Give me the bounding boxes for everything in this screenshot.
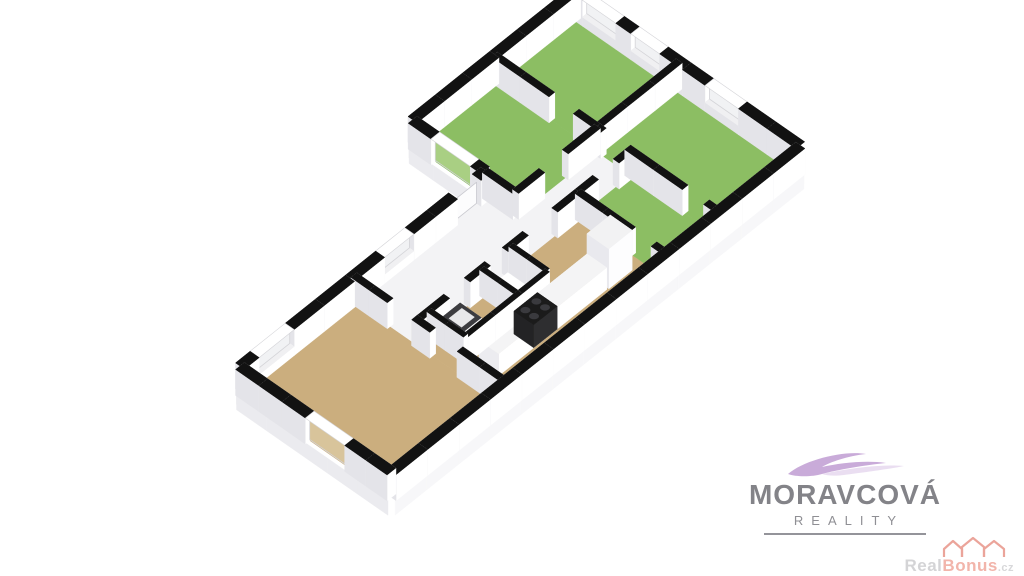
houses-icon (942, 536, 1008, 558)
agency-name: MORAVCOVÁ (745, 480, 945, 509)
logo-swoosh-icon (770, 446, 920, 480)
floorplan-page: MORAVCOVÁ REALITY RealBonus.cz (0, 0, 1024, 576)
watermark-real: Real (905, 556, 943, 575)
agency-logo: MORAVCOVÁ REALITY (745, 446, 945, 535)
watermark-text: RealBonus.cz (905, 558, 1015, 574)
agency-subtitle: REALITY (745, 513, 945, 528)
logo-underline (764, 533, 926, 535)
watermark-cz: .cz (998, 562, 1014, 574)
realbonus-watermark: RealBonus.cz (905, 536, 1015, 574)
watermark-bonus: Bonus (942, 556, 997, 575)
